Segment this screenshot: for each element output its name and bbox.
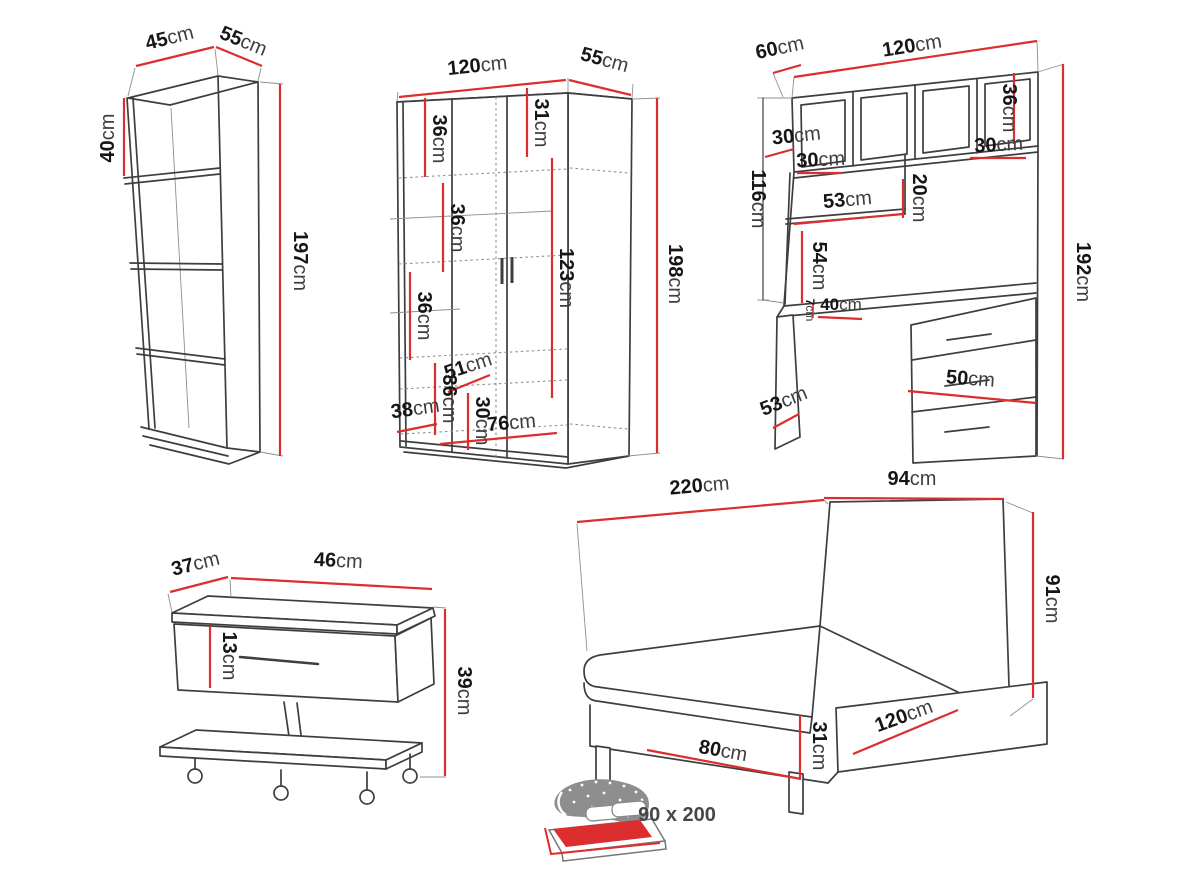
nightstand-width-label: 46cm (313, 549, 363, 574)
desk-drawing: 60cm 120cm 30cm 30cm 36cm 30cm 116cm 20c… (747, 31, 1094, 463)
desk-drawer-width-label: 50cm (945, 366, 995, 391)
wardrobe-depth-label: 55cm (578, 43, 631, 77)
desk-cab-height-label: 36cm (998, 84, 1020, 133)
furniture-dimensions-diagram: 45cm 55cm 40cm 197cm (0, 0, 1193, 894)
desk-cab-right-label: 30cm (974, 133, 1024, 158)
wardrobe-door-height-label: 123cm (555, 248, 577, 308)
desk-cab-left-label: 30cm (796, 148, 846, 173)
nightstand-drawer-label: 13cm (218, 632, 240, 681)
nightstand-height-label: 39cm (453, 667, 475, 716)
bookshelf-drawing: 45cm 55cm 40cm 197cm (97, 22, 311, 464)
bed-base-height-label: 31cm (808, 722, 830, 771)
desk-shelf-height-label: 20cm (908, 174, 930, 223)
bookshelf-depth-label: 55cm (216, 22, 270, 61)
desk-desktop-depth-label: 40cm (820, 295, 862, 314)
desk-total-height-label: 192cm (1072, 242, 1094, 302)
nightstand-depth-label: 37cm (169, 548, 222, 581)
wardrobe-top-right-label: 31cm (530, 99, 552, 148)
diagram-canvas: 45cm 55cm 40cm 197cm (0, 0, 1193, 894)
wardrobe-low-left-label: 36cm (413, 292, 435, 341)
bed-length-label: 220cm (669, 472, 731, 499)
wardrobe-mid-left-label: 36cm (446, 204, 468, 253)
bookshelf-width-label: 45cm (143, 22, 196, 55)
wardrobe-height-label: 198cm (664, 244, 686, 304)
nightstand-drawing: 37cm 46cm 13cm 39cm (160, 548, 475, 804)
bed-drawing: 220cm 94cm 91cm 31cm 120cm 80cm (577, 468, 1063, 814)
desk-panel-height-label: 54cm (808, 242, 830, 291)
wardrobe-top-left-label: 36cm (428, 115, 450, 164)
bookshelf-height-label: 197cm (289, 231, 311, 291)
bed-headboard-width-label: 94cm (888, 468, 937, 490)
wardrobe-drawing: 120cm 55cm 36cm 31cm 36cm 123cm 36cm 51c… (389, 43, 686, 468)
bed-headboard-height-label: 91cm (1041, 575, 1063, 624)
desk-depth-label: 60cm (754, 32, 806, 64)
bookshelf-compartment-label: 40cm (97, 114, 119, 163)
wardrobe-interior-label: 76cm (486, 410, 537, 436)
desk-shelf-width-label: 53cm (822, 187, 873, 213)
desk-left-height-label: 116cm (747, 170, 769, 229)
wardrobe-width-label: 120cm (446, 52, 508, 80)
bed-size-icon: 90 x 200 (545, 779, 716, 861)
wardrobe-lower-left-label: 36cm (438, 375, 460, 424)
desk-top-thickness-label: 7cm (803, 299, 817, 322)
bed-size-label: 90 x 200 (638, 804, 716, 826)
